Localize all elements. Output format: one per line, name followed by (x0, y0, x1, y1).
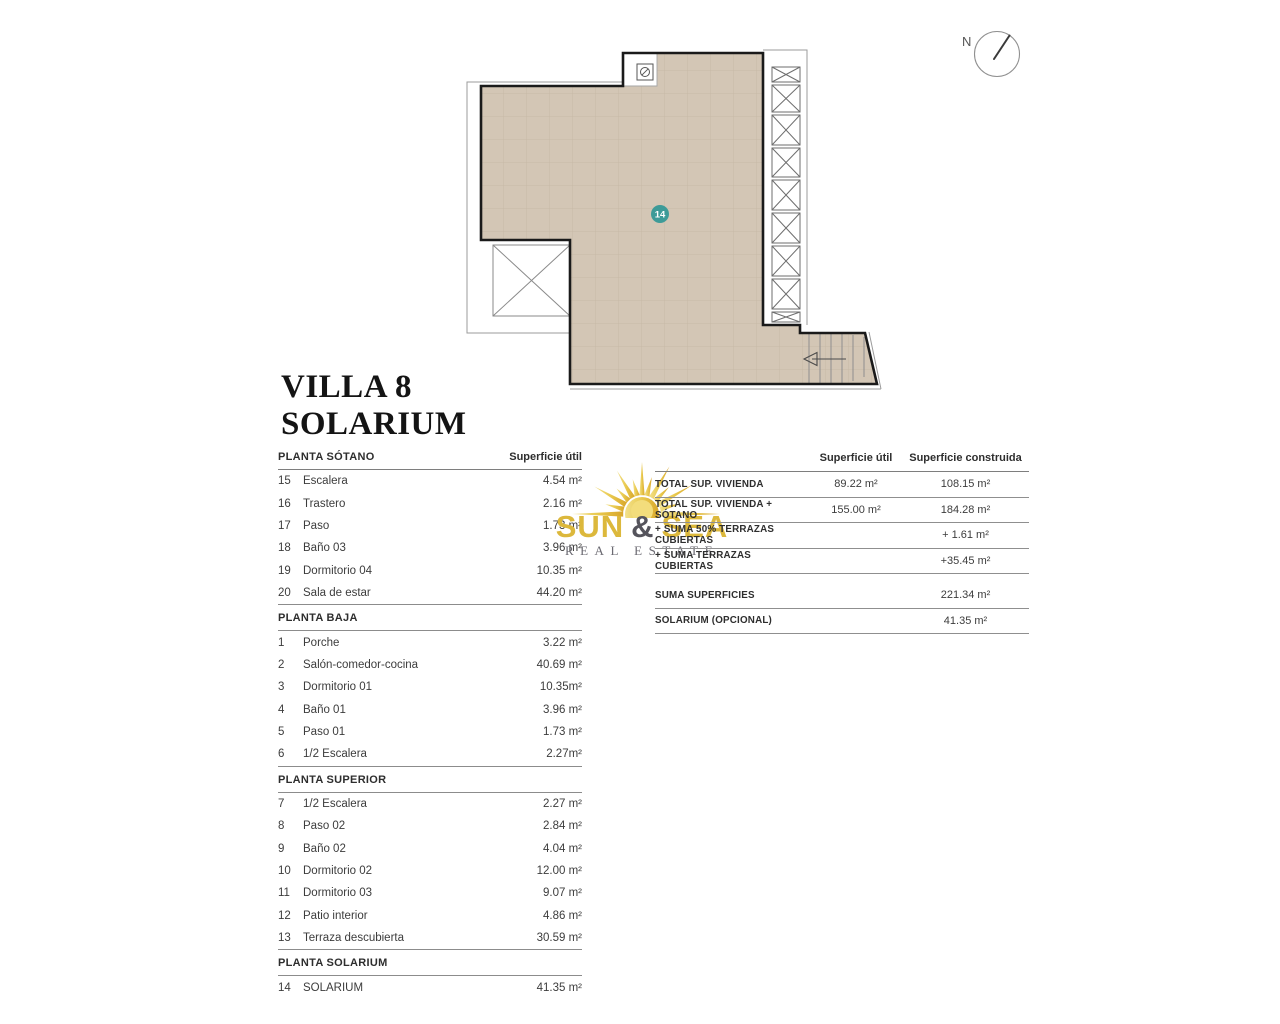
areas-table: PLANTA SÓTANO Superficie útil 15Escalera… (278, 451, 582, 999)
table-row: 17Paso1.73 m² (278, 515, 582, 537)
section-title-solarium: PLANTA SOLARIUM (278, 949, 582, 976)
compass-north-label: N (962, 34, 971, 49)
table-row: 15Escalera4.54 m² (278, 470, 582, 492)
brand-ampersand: & (631, 511, 654, 542)
summary-row: SOLARIUM (OPCIONAL) 41.35 m² (655, 609, 1029, 635)
pergola-beams (772, 67, 800, 322)
table-row: 3Dormitorio 0110.35m² (278, 676, 582, 698)
table-row: 19Dormitorio 0410.35 m² (278, 560, 582, 582)
table-row: 14SOLARIUM41.35 m² (278, 976, 582, 998)
summary-row: SUMA SUPERFICIES 221.34 m² (655, 583, 1029, 609)
table-row: 9Baño 024.04 m² (278, 837, 582, 859)
table-row: 4Baño 013.96 m² (278, 699, 582, 721)
col-header-util: Superficie útil (810, 452, 902, 464)
table-row: 10Dormitorio 0212.00 m² (278, 860, 582, 882)
room-marker: 14 (651, 205, 669, 223)
void-x-square (493, 245, 570, 316)
table-row: 2Salón-comedor-cocina40.69 m² (278, 654, 582, 676)
table-row: 71/2 Escalera2.27 m² (278, 793, 582, 815)
solarium-floor (481, 53, 877, 384)
compass-needle-icon (994, 36, 1010, 60)
roof-strip (622, 53, 657, 86)
summary-row: TOTAL SUP. VIVIENDA 89.22 m² 108.15 m² (655, 472, 1029, 498)
page-title-line2: SOLARIUM (281, 406, 467, 443)
table-row: 1Porche3.22 m² (278, 631, 582, 653)
section-title-superior: PLANTA SUPERIOR (278, 766, 582, 793)
areas-table-header: PLANTA SÓTANO Superficie útil (278, 451, 582, 470)
compass: N (945, 15, 1045, 100)
table-row: 13Terraza descubierta30.59 m² (278, 927, 582, 949)
summary-row: + SUMA TERRAZAS CUBIERTAS +35.45 m² (655, 549, 1029, 575)
table-row: 5Paso 011.73 m² (278, 721, 582, 743)
table-row: 20Sala de estar44.20 m² (278, 582, 582, 604)
summary-row: TOTAL SUP. VIVIENDA + SÓTANO 155.00 m² 1… (655, 498, 1029, 524)
summary-table: Superficie útil Superficie construida TO… (655, 452, 1029, 634)
summary-table-header: Superficie útil Superficie construida (655, 452, 1029, 472)
brand-word-sun: SUN (556, 511, 624, 542)
room-marker-label: 14 (655, 210, 666, 221)
floor-plan: 14 (458, 25, 888, 405)
section-title-baja: PLANTA BAJA (278, 604, 582, 631)
table-row: 18Baño 033.96 m² (278, 537, 582, 559)
table-row: 61/2 Escalera2.27m² (278, 743, 582, 765)
table-row: 11Dormitorio 039.07 m² (278, 882, 582, 904)
table-row: 8Paso 022.84 m² (278, 815, 582, 837)
summary-row: + SUMA 50% TERRAZAS CUBIERTAS + 1.61 m² (655, 523, 1029, 549)
section-title-sotano: PLANTA SÓTANO (278, 451, 375, 463)
col-header-construida: Superficie construida (902, 452, 1029, 464)
page-title-line1: VILLA 8 (281, 369, 467, 406)
table-row: 16Trastero2.16 m² (278, 492, 582, 514)
table-row: 12Patio interior4.86 m² (278, 905, 582, 927)
page-title: VILLA 8 SOLARIUM (281, 369, 467, 443)
